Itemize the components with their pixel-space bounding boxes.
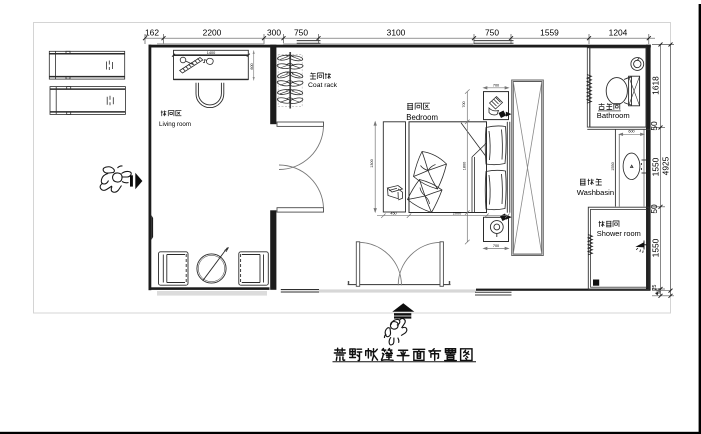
svg-text:700: 700 [493, 244, 499, 248]
svg-text:3100: 3100 [387, 27, 406, 37]
svg-text:750: 750 [485, 27, 499, 37]
svg-text:Washbasin: Washbasin [577, 188, 614, 197]
svg-text:1559: 1559 [540, 27, 559, 37]
svg-text:450: 450 [390, 212, 396, 216]
svg-text:1550: 1550 [611, 162, 615, 170]
svg-text:700: 700 [493, 83, 499, 87]
svg-text:1550: 1550 [650, 238, 660, 257]
svg-text:1800: 1800 [463, 162, 467, 170]
svg-text:1400: 1400 [207, 51, 215, 55]
svg-text:600: 600 [628, 130, 634, 134]
svg-text:Shower room: Shower room [597, 229, 641, 238]
svg-text:700: 700 [462, 101, 466, 107]
svg-text:Coat rack: Coat rack [308, 82, 338, 89]
svg-text:Bedroom: Bedroom [406, 113, 438, 122]
svg-text:162: 162 [145, 27, 159, 37]
svg-text:4925: 4925 [660, 156, 670, 175]
svg-text:1300: 1300 [370, 159, 374, 167]
svg-text:600: 600 [250, 63, 254, 69]
svg-text:1204: 1204 [609, 27, 628, 37]
svg-text:1550: 1550 [650, 157, 660, 176]
svg-text:Bathroom: Bathroom [597, 111, 630, 120]
svg-text:Living room: Living room [159, 121, 191, 128]
svg-text:1618: 1618 [650, 76, 660, 95]
svg-text:2200: 2200 [203, 27, 222, 37]
svg-text:2000: 2000 [453, 212, 461, 216]
svg-text:300: 300 [267, 27, 281, 37]
svg-text:750: 750 [294, 27, 308, 37]
